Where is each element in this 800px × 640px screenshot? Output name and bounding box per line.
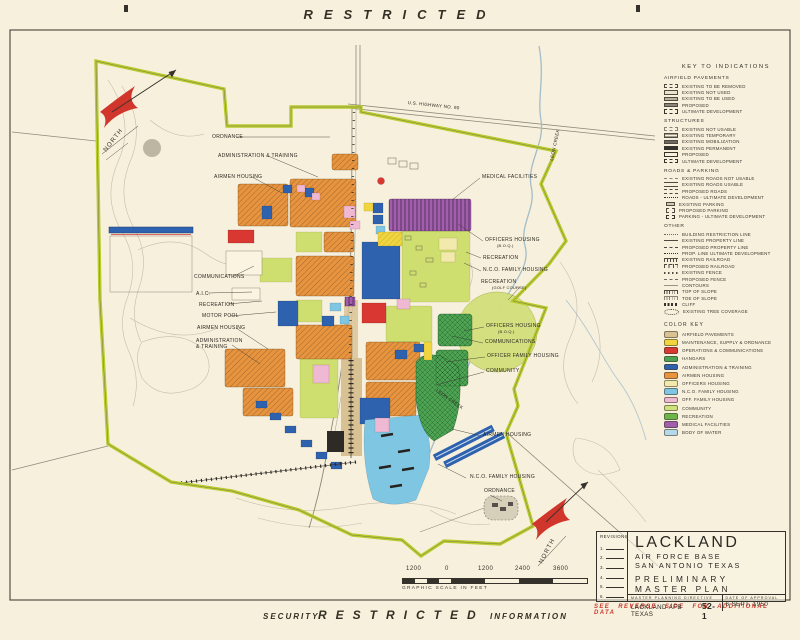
directive-number: 52-1 bbox=[702, 601, 719, 621]
swatch-structure-not-usable bbox=[664, 127, 678, 132]
legend-item: EXISTING NOT USABLE bbox=[664, 127, 788, 132]
graphic-scale: 1200 0 1200 2400 3600 GRAPHIC SCALE IN F… bbox=[398, 566, 594, 594]
swatch-parking-proposed bbox=[666, 208, 675, 213]
swatch-structure-ultimate bbox=[664, 159, 678, 164]
plan-title: PRELIMINARY MASTER PLAN bbox=[635, 574, 778, 594]
swatch-structure-permanent bbox=[664, 146, 678, 151]
approval-cell: DATE OF APPROVAL 6 SEPT. 1950 bbox=[723, 595, 785, 611]
revision-row: 2. bbox=[600, 551, 624, 561]
swatch-parking-ultimate bbox=[666, 215, 675, 220]
map-label-nco-housing-e: N.C.O. FAMILY HOUSING bbox=[483, 267, 548, 273]
map-label-boq-2: (B.O.Q.) bbox=[498, 329, 515, 334]
map-label-communications-e: COMMUNICATIONS bbox=[485, 339, 536, 345]
legend-item: CONTOURS bbox=[664, 283, 788, 288]
approval-date: 6 SEPT. 1950 bbox=[726, 601, 769, 608]
legend: KEY TO INDICATIONS AIRFIELD PAVEMENTS EX… bbox=[664, 64, 788, 437]
title-block-titles: LACKLAND AIR FORCE BASE SAN ANTONIO TEXA… bbox=[628, 532, 785, 594]
color-swatch bbox=[664, 388, 678, 395]
revision-blank-line bbox=[606, 568, 624, 569]
revision-row: 1. bbox=[600, 541, 624, 551]
swatch-proposed-fence bbox=[664, 279, 678, 280]
color-key-item: AIRMEN HOUSING bbox=[664, 372, 788, 379]
revision-row: 3. bbox=[600, 560, 624, 570]
legend-item: PROPOSED ROADS bbox=[664, 189, 788, 194]
railroad bbox=[180, 112, 356, 483]
swatch-proposed-pavement bbox=[664, 103, 678, 108]
revision-blank-line bbox=[606, 597, 624, 598]
color-swatch bbox=[664, 339, 678, 346]
legend-item: EXISTING MOBILIZATION bbox=[664, 139, 788, 144]
legend-item: ULTIMATE DEVELOPMENT bbox=[664, 159, 788, 164]
swatch-existing-to-be-used bbox=[664, 97, 678, 102]
swatch-roads-usable bbox=[664, 182, 678, 187]
map-sheet: { "banner": { "top": "RESTRICTED", "bott… bbox=[0, 0, 800, 640]
security-label: SECURITY bbox=[263, 612, 319, 621]
map-label-officer-family-housing: OFFICER FAMILY HOUSING bbox=[487, 353, 559, 359]
scale-tick: 1200 bbox=[478, 566, 493, 572]
map-label-community: COMMUNITY bbox=[486, 368, 520, 374]
color-key-item: RECREATION bbox=[664, 413, 788, 420]
yellow-hatch bbox=[378, 232, 402, 246]
legend-item: PROPOSED bbox=[664, 103, 788, 108]
swatch-existing-to-be-removed bbox=[664, 84, 678, 89]
color-key-item: ADMINISTRATION & TRAINING bbox=[664, 364, 788, 371]
legend-item: PROPOSED PROPERTY LINE bbox=[664, 245, 788, 250]
color-swatch bbox=[664, 331, 678, 338]
information-label: INFORMATION bbox=[490, 612, 568, 621]
swatch-building-restriction-line bbox=[664, 234, 678, 235]
swatch-cliff bbox=[664, 303, 678, 306]
color-key-heading: COLOR KEY bbox=[664, 322, 788, 328]
map-label-golf-course: (GOLF COURSE) bbox=[492, 285, 526, 290]
base-line3: SAN ANTONIO TEXAS bbox=[635, 561, 778, 570]
swatch-structure-proposed bbox=[664, 152, 678, 157]
color-swatch bbox=[664, 429, 678, 436]
legend-item: PARKING - ULTIMATE DEVELOPMENT bbox=[664, 214, 788, 219]
restricted-banner-bottom: RESTRICTED bbox=[318, 608, 485, 622]
map-label-airmen-housing-w: AIRMEN HOUSING bbox=[197, 325, 245, 331]
legend-section-heading: OTHER bbox=[664, 224, 788, 229]
map-label-aic: A.I.C. bbox=[196, 291, 210, 297]
legend-item: EXISTING ROADS NOT USABLE bbox=[664, 176, 788, 181]
scale-tick: 1200 bbox=[406, 566, 421, 572]
legend-section-heading: AIRFIELD PAVEMENTS bbox=[664, 76, 788, 81]
directive-cell: MASTER PLANNING DIRECTIVE LACKLAND AFB T… bbox=[628, 595, 723, 611]
swatch-top-of-slope bbox=[664, 290, 678, 294]
legend-item: ULTIMATE DEVELOPMENT bbox=[664, 109, 788, 114]
base-line2: AIR FORCE BASE bbox=[635, 552, 778, 561]
color-key-item: OFF. FAMILY HOUSING bbox=[664, 397, 788, 404]
revision-blank-line bbox=[606, 549, 624, 550]
legend-item: EXISTING PROPERTY LINE bbox=[664, 238, 788, 243]
legend-item: EXISTING NOT USED bbox=[664, 90, 788, 95]
restricted-banner-top: RESTRICTED bbox=[0, 7, 800, 22]
revision-blank-line bbox=[606, 558, 624, 559]
swatch-roads-not-usable bbox=[664, 178, 678, 179]
legend-item: EXISTING TO BE REMOVED bbox=[664, 84, 788, 89]
map-label-motor-pool: MOTOR POOL bbox=[202, 313, 239, 319]
legend-item: EXISTING TO BE USED bbox=[664, 96, 788, 101]
revisions-column: REVISIONS 1. 2. 3. 4. 5. 6. bbox=[597, 532, 628, 601]
color-swatch bbox=[664, 405, 678, 412]
title-block: REVISIONS 1. 2. 3. 4. 5. 6. LACKLAND AIR… bbox=[596, 531, 786, 602]
color-swatch bbox=[664, 413, 678, 420]
swatch-roads-ultimate bbox=[664, 197, 678, 198]
north-label: NORTH bbox=[102, 127, 125, 153]
map-label-nco-housing-se: N.C.O. FAMILY HOUSING bbox=[470, 474, 535, 480]
north-arrow-top: NORTH bbox=[100, 70, 176, 160]
legend-item: EXISTING PARKING bbox=[664, 202, 788, 207]
directive-value: LACKLAND AFB TEXAS bbox=[631, 604, 699, 618]
scale-tick: 2400 bbox=[515, 566, 530, 572]
swatch-roads-proposed bbox=[664, 189, 678, 194]
scale-tick: 0 bbox=[445, 566, 449, 572]
color-swatch bbox=[664, 356, 678, 363]
revision-row: 5. bbox=[600, 580, 624, 590]
legend-item: BUILDING RESTRICTION LINE bbox=[664, 232, 788, 237]
scale-tick: 3600 bbox=[553, 566, 568, 572]
legend-item: TOE OF SLOPE bbox=[664, 296, 788, 301]
map-label-airmen-housing-nw: AIRMEN HOUSING bbox=[214, 174, 262, 180]
swatch-proposed-railroad bbox=[664, 264, 678, 268]
base-name: LACKLAND bbox=[635, 535, 778, 551]
north-arrow-bottom: NORTH bbox=[532, 482, 588, 566]
scale-bar bbox=[402, 578, 588, 584]
legend-item: EXISTING ROADS USABLE bbox=[664, 182, 788, 187]
color-swatch bbox=[664, 380, 678, 387]
legend-item: EXISTING RAILROAD bbox=[664, 257, 788, 262]
zone-officers-boq bbox=[439, 238, 457, 262]
swatch-existing-fence bbox=[664, 272, 678, 274]
revision-row: 6. bbox=[600, 589, 624, 599]
color-swatch bbox=[664, 364, 678, 371]
map-label-boq-1: (B.O.Q.) bbox=[497, 243, 514, 248]
color-key-item: MAINTENANCE, SUPPLY & ORDNANCE bbox=[664, 339, 788, 346]
swatch-structure-mobilization bbox=[664, 140, 678, 145]
color-swatch bbox=[664, 397, 678, 404]
swatch-ultimate-pavement bbox=[664, 109, 678, 114]
color-swatch bbox=[664, 372, 678, 379]
title-block-footer: MASTER PLANNING DIRECTIVE LACKLAND AFB T… bbox=[628, 594, 785, 611]
approval-heading: DATE OF APPROVAL bbox=[726, 596, 782, 600]
map-label-recreation-w: RECREATION bbox=[199, 302, 234, 308]
legend-item: PROP. LINE ULTIMATE DEVELOPMENT bbox=[664, 251, 788, 256]
legend-item: EXISTING FENCE bbox=[664, 270, 788, 275]
map-label-ordnance-nw: ORDNANCE bbox=[212, 134, 243, 140]
color-key-item: BODY OF WATER bbox=[664, 429, 788, 436]
swatch-existing-railroad bbox=[664, 258, 678, 262]
swatch-tree-coverage bbox=[664, 309, 679, 316]
swatch-existing-property-line bbox=[664, 240, 678, 241]
color-swatch bbox=[664, 421, 678, 428]
map-label-admin-training-w: ADMINISTRATION & TRAINING bbox=[196, 338, 243, 351]
revision-blank-line bbox=[606, 578, 624, 579]
revision-blank-line bbox=[606, 587, 624, 588]
swatch-prop-line-ultimate bbox=[664, 253, 678, 254]
color-key-item: OFFICERS HOUSING bbox=[664, 380, 788, 387]
color-key-item: MEDICAL FACILITIES bbox=[664, 421, 788, 428]
color-key-item: OPERATIONS & COMMUNICATIONS bbox=[664, 347, 788, 354]
legend-section-heading: ROADS & PARKING bbox=[664, 169, 788, 174]
legend-item: CLIFF bbox=[664, 302, 788, 307]
legend-item: EXISTING PERMANENT bbox=[664, 146, 788, 151]
color-swatch bbox=[664, 347, 678, 354]
color-key-item: AIRFIELD PAVEMENTS bbox=[664, 331, 788, 338]
swatch-contours bbox=[664, 285, 678, 286]
title-block-main: LACKLAND AIR FORCE BASE SAN ANTONIO TEXA… bbox=[628, 532, 785, 601]
legend-item: PROPOSED PARKING bbox=[664, 208, 788, 213]
swatch-structure-temporary bbox=[664, 133, 678, 138]
map-label-ordnance-se: ORDNANCE bbox=[484, 488, 515, 494]
color-key-item: HANGARS bbox=[664, 356, 788, 363]
color-key-item: N.C.O. FAMILY HOUSING bbox=[664, 388, 788, 395]
swatch-toe-of-slope bbox=[664, 296, 678, 300]
legend-title: KEY TO INDICATIONS bbox=[664, 64, 788, 70]
legend-item: ROADS - ULTIMATE DEVELOPMENT bbox=[664, 195, 788, 200]
swatch-proposed-property-line bbox=[664, 247, 678, 248]
directive-heading: MASTER PLANNING DIRECTIVE bbox=[631, 596, 719, 600]
legend-item: PROPOSED FENCE bbox=[664, 277, 788, 282]
map-label-communications-w: COMMUNICATIONS bbox=[194, 274, 245, 280]
revision-row: 4. bbox=[600, 570, 624, 580]
swatch-existing-not-used bbox=[664, 90, 678, 95]
legend-item: EXISTING TEMPORARY bbox=[664, 133, 788, 138]
map-label-medical-facilities: MEDICAL FACILITIES bbox=[482, 174, 537, 180]
legend-item: TOP OF SLOPE bbox=[664, 289, 788, 294]
swatch-parking-existing bbox=[666, 202, 675, 207]
scale-caption: GRAPHIC SCALE IN FEET bbox=[402, 586, 488, 591]
legend-item: EXISTING TREE COVERAGE bbox=[664, 309, 788, 316]
color-key-item: COMMUNITY bbox=[664, 405, 788, 412]
map-label-admin-training-nw: ADMINISTRATION & TRAINING bbox=[218, 153, 298, 159]
revisions-heading: REVISIONS bbox=[600, 534, 624, 539]
map-label-airmen-housing-se: AIRMEN HOUSING bbox=[483, 432, 531, 438]
legend-item: PROPOSED bbox=[664, 152, 788, 157]
legend-item: PROPOSED RAILROAD bbox=[664, 264, 788, 269]
legend-section-heading: STRUCTURES bbox=[664, 119, 788, 124]
map-label-recreation-e1: RECREATION bbox=[483, 255, 518, 261]
north-label: NORTH bbox=[538, 537, 557, 565]
